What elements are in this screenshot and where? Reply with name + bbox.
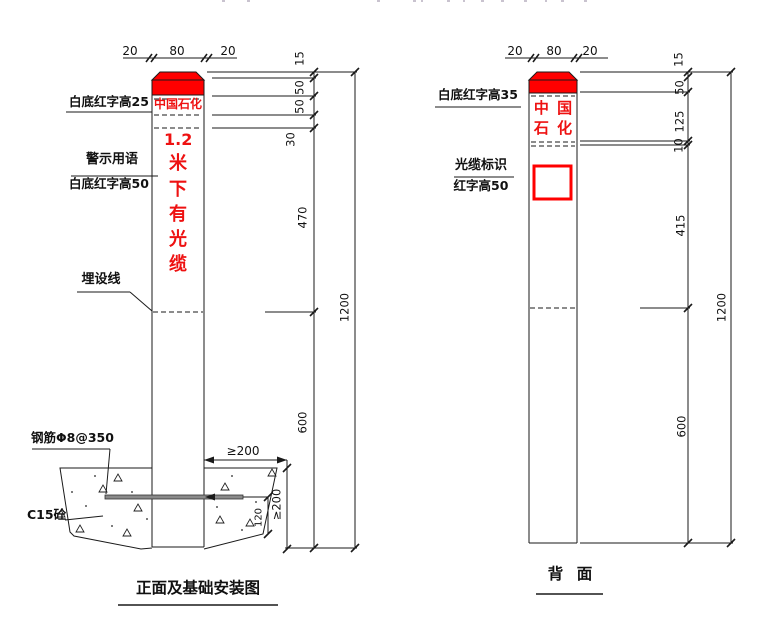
front-cap-note-label: 白底红字高25 <box>65 96 153 109</box>
burial-line-label: 埋设线 <box>76 273 126 286</box>
front-callout-leaders <box>32 112 158 520</box>
back-top-dim-right: 20 <box>580 45 600 57</box>
front-top-dim-left: 20 <box>120 45 140 57</box>
back-cap <box>529 72 577 93</box>
warning-char-3: 有 <box>164 206 192 224</box>
front-post-outline <box>152 80 204 547</box>
warning-char-4: 光 <box>164 231 192 249</box>
back-post-outline <box>529 80 577 543</box>
back-dim-415: 415 <box>676 206 689 246</box>
drawing-linework <box>0 0 779 617</box>
warning-note-line2-label: 白底红字高50 <box>64 178 154 191</box>
back-extension-lines <box>580 72 733 543</box>
rebar-anchor-bar <box>105 494 268 501</box>
concrete-label: C15砼 <box>27 509 73 522</box>
warning-note-line1-label: 警示用语 <box>79 153 145 166</box>
back-brand-line1: 中 国 <box>529 101 577 116</box>
foundation-width-dim: ≥200 <box>219 445 267 457</box>
back-dim-1200: 1200 <box>717 288 730 328</box>
back-dim-600: 600 <box>677 407 690 447</box>
front-dim-470: 470 <box>298 198 311 238</box>
cable-marker-red-box <box>534 166 571 199</box>
rebar-label: 钢筋Φ8@350 <box>31 432 115 445</box>
warning-char-5: 缆 <box>164 256 192 274</box>
front-cap <box>152 72 204 95</box>
foundation-depth-dim: ≥200 <box>272 485 285 525</box>
warning-char-1: 米 <box>164 155 192 173</box>
back-dim-10: 10 <box>674 126 687 166</box>
front-extension-lines <box>207 72 357 548</box>
front-top-dim-right: 20 <box>218 45 238 57</box>
front-view-title: 正面及基础安装图 <box>116 581 280 597</box>
front-dim-600: 600 <box>298 403 311 443</box>
foundation-left-block <box>60 468 152 549</box>
front-dim-30: 30 <box>286 120 299 160</box>
concrete-aggregate-marks <box>57 469 276 536</box>
back-brand-line2: 石 化 <box>529 121 577 136</box>
warning-char-2: 下 <box>164 181 192 199</box>
back-top-dim-left: 20 <box>505 45 525 57</box>
back-cap-note-label: 白底红字高35 <box>434 89 522 102</box>
marker-note-line1-label: 光缆标识 <box>452 159 510 172</box>
back-top-dim-middle: 80 <box>544 45 564 57</box>
cropped-title-fragments <box>222 0 587 2</box>
back-view-title: 背 面 <box>528 567 612 583</box>
front-top-dim-middle: 80 <box>167 45 187 57</box>
warning-char-0: 1.2 <box>164 132 192 148</box>
marker-note-line2-label: 红字高50 <box>452 180 510 193</box>
installation-drawing: 20 80 20 白底红字高25 中国石化 1.2 米 下 有 光 缆 警示用语… <box>0 0 779 617</box>
bar-depth-dim: 120 <box>255 498 268 538</box>
front-dim-1200: 1200 <box>340 288 353 328</box>
front-brand-text: 中国石化 <box>152 98 204 110</box>
